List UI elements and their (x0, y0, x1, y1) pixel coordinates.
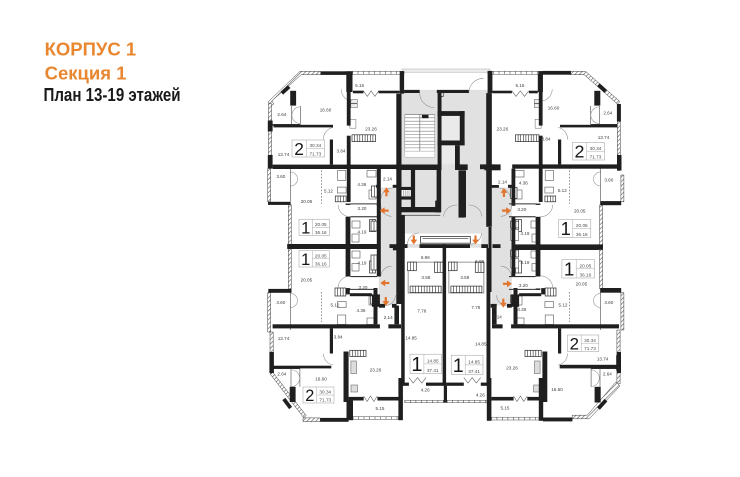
svg-text:План 13-19 этажей: План 13-19 этажей (44, 85, 181, 105)
svg-text:2: 2 (294, 139, 304, 159)
svg-text:3.58: 3.58 (421, 275, 430, 280)
svg-text:14.85: 14.85 (475, 342, 487, 347)
svg-text:37.41: 37.41 (427, 368, 439, 373)
svg-text:3.20: 3.20 (519, 283, 528, 288)
svg-text:1: 1 (564, 259, 575, 280)
svg-text:5.15: 5.15 (376, 406, 385, 411)
svg-text:13.74: 13.74 (278, 152, 290, 157)
svg-text:23.26: 23.26 (365, 126, 377, 131)
svg-text:3.60: 3.60 (276, 174, 285, 179)
svg-text:71.73: 71.73 (584, 346, 596, 351)
svg-text:4.26: 4.26 (421, 388, 430, 393)
svg-text:16.60: 16.60 (548, 106, 560, 111)
svg-text:71.73: 71.73 (319, 398, 331, 403)
svg-text:20.05: 20.05 (301, 278, 313, 283)
svg-text:71.73: 71.73 (310, 152, 322, 157)
svg-text:14.85: 14.85 (405, 336, 417, 341)
svg-text:14.85: 14.85 (468, 359, 480, 364)
svg-text:3.84: 3.84 (337, 148, 346, 153)
svg-text:30.34: 30.34 (319, 390, 331, 395)
svg-text:4.19: 4.19 (521, 260, 530, 265)
svg-text:2.14: 2.14 (383, 177, 392, 182)
svg-text:14.85: 14.85 (427, 358, 439, 363)
svg-text:3.84: 3.84 (542, 137, 551, 142)
svg-text:16.60: 16.60 (315, 377, 327, 382)
svg-text:30.34: 30.34 (584, 338, 596, 343)
svg-text:13.74: 13.74 (597, 357, 609, 362)
svg-text:4.19: 4.19 (358, 230, 367, 235)
svg-text:5.12: 5.12 (558, 188, 567, 193)
svg-text:4.36: 4.36 (357, 182, 366, 187)
svg-text:3.60: 3.60 (604, 300, 613, 305)
svg-text:23.26: 23.26 (506, 365, 518, 370)
svg-text:1: 1 (411, 354, 422, 376)
svg-text:4.36: 4.36 (517, 307, 526, 312)
svg-text:5.15: 5.15 (501, 406, 510, 411)
svg-text:2: 2 (570, 334, 579, 353)
svg-text:2.64: 2.64 (277, 112, 286, 117)
svg-text:2: 2 (305, 387, 314, 405)
svg-text:36.16: 36.16 (315, 262, 327, 267)
svg-text:4.26: 4.26 (476, 392, 485, 397)
svg-text:16.60: 16.60 (551, 387, 563, 392)
svg-text:20.05: 20.05 (315, 254, 327, 259)
svg-text:3.58: 3.58 (460, 275, 469, 280)
svg-text:КОРПУС 1: КОРПУС 1 (45, 39, 137, 60)
svg-text:7.76: 7.76 (417, 308, 426, 313)
svg-text:20.05: 20.05 (315, 222, 327, 227)
svg-text:20.05: 20.05 (580, 263, 592, 268)
svg-text:20.05: 20.05 (301, 199, 313, 204)
svg-text:2.64: 2.64 (603, 371, 612, 376)
svg-text:2: 2 (575, 142, 585, 162)
svg-text:2.14: 2.14 (498, 179, 507, 184)
svg-text:7.76: 7.76 (471, 305, 480, 310)
svg-text:3.20: 3.20 (359, 285, 368, 290)
svg-text:20.05: 20.05 (574, 209, 586, 214)
svg-text:23.26: 23.26 (497, 127, 509, 132)
svg-text:2.64: 2.64 (277, 372, 286, 377)
svg-text:6.96: 6.96 (421, 255, 430, 260)
svg-text:Секция 1: Секция 1 (45, 62, 127, 83)
svg-text:4.36: 4.36 (357, 308, 366, 313)
svg-text:5.12: 5.12 (324, 188, 333, 193)
svg-text:1: 1 (453, 355, 464, 377)
svg-text:5.15: 5.15 (355, 83, 364, 88)
svg-text:1: 1 (301, 218, 310, 237)
svg-text:2.64: 2.64 (603, 110, 612, 115)
svg-text:1: 1 (301, 250, 310, 269)
svg-text:3.60: 3.60 (604, 177, 613, 182)
svg-text:37.41: 37.41 (468, 369, 480, 374)
svg-text:4.36: 4.36 (519, 181, 528, 186)
svg-text:36.16: 36.16 (315, 230, 327, 235)
svg-text:36.16: 36.16 (576, 232, 588, 237)
svg-text:13.74: 13.74 (278, 336, 290, 341)
svg-text:20.05: 20.05 (576, 282, 588, 287)
svg-text:13.74: 13.74 (598, 135, 610, 140)
svg-text:5.12: 5.12 (331, 303, 340, 308)
svg-text:2.14: 2.14 (384, 315, 393, 320)
svg-text:1: 1 (561, 218, 571, 239)
svg-text:23.26: 23.26 (370, 367, 382, 372)
svg-text:5.12: 5.12 (559, 303, 568, 308)
svg-text:5.15: 5.15 (516, 83, 525, 88)
svg-text:3.20: 3.20 (358, 206, 367, 211)
svg-text:3.20: 3.20 (517, 207, 526, 212)
svg-text:4.19: 4.19 (521, 231, 530, 236)
svg-text:30.34: 30.34 (310, 143, 322, 148)
svg-text:3.60: 3.60 (276, 300, 285, 305)
svg-text:20.05: 20.05 (576, 223, 588, 228)
svg-text:16.60: 16.60 (320, 108, 332, 113)
svg-text:36.16: 36.16 (580, 273, 592, 278)
svg-text:6.96: 6.96 (475, 259, 484, 264)
svg-text:4.19: 4.19 (358, 261, 367, 266)
svg-text:71.73: 71.73 (590, 155, 602, 160)
svg-text:30.34: 30.34 (590, 146, 602, 151)
svg-text:3.84: 3.84 (334, 334, 343, 339)
svg-text:2.14: 2.14 (493, 315, 502, 320)
